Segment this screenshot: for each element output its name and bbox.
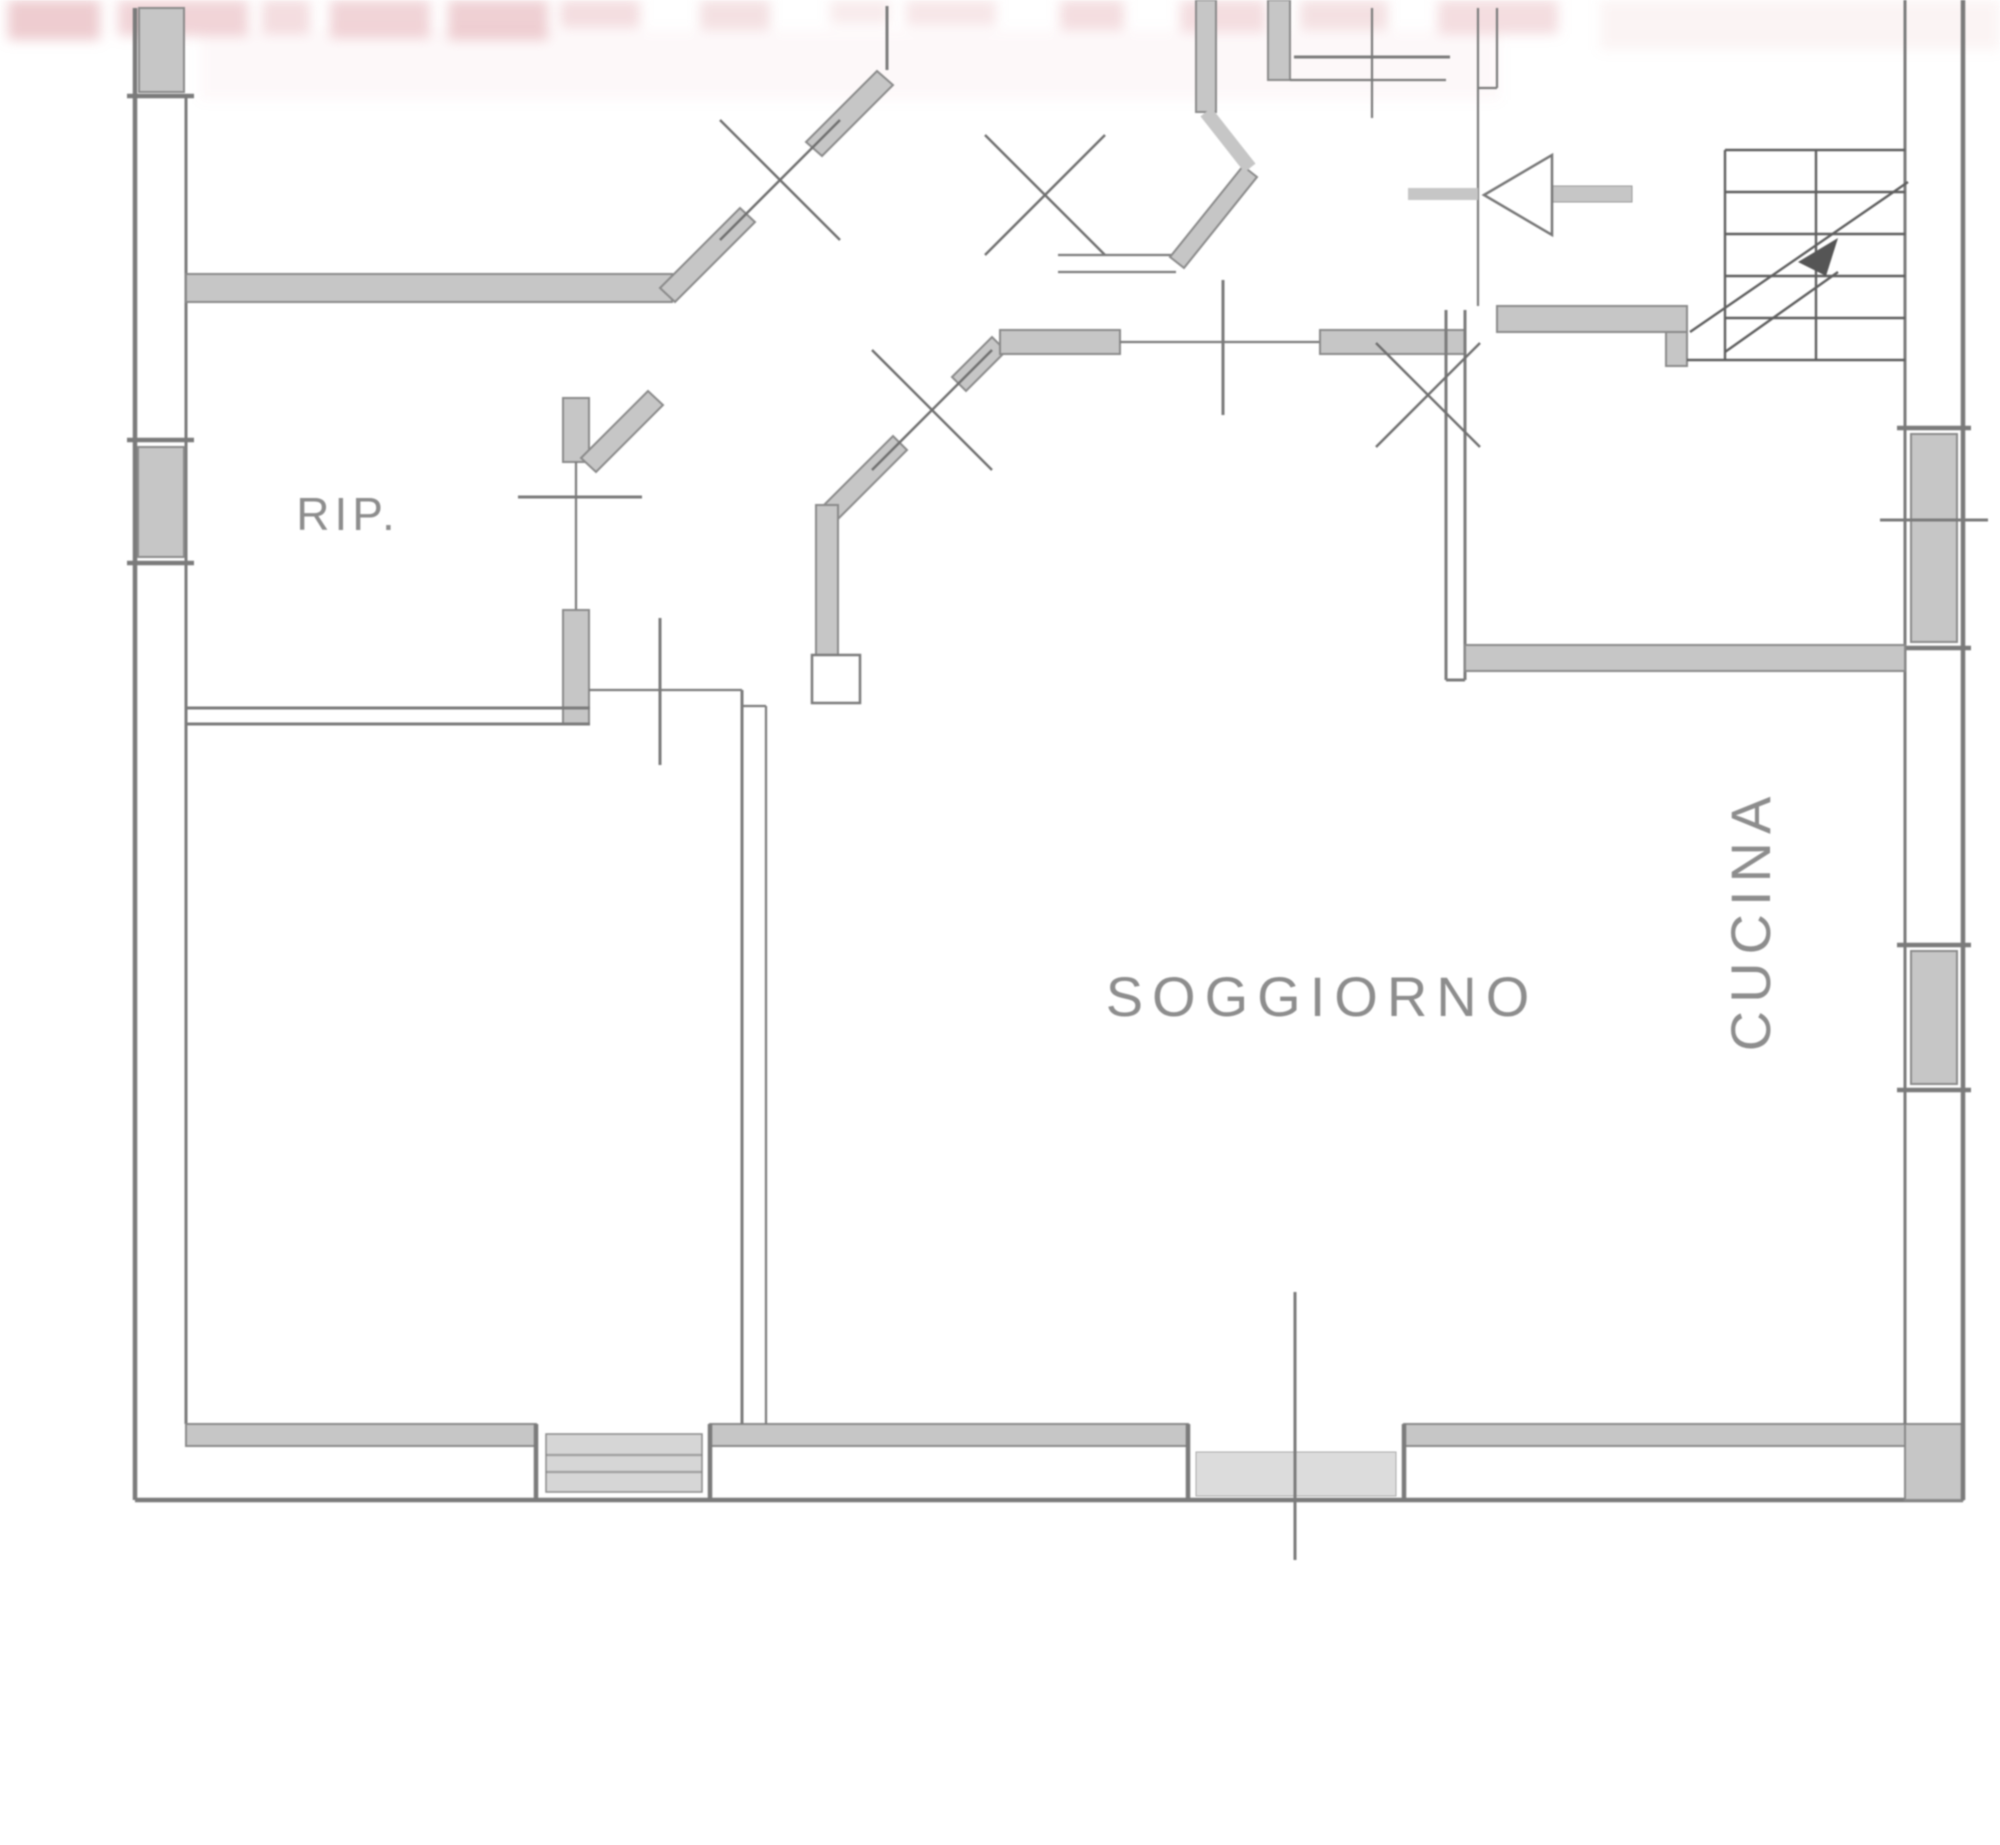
window-icon [138, 447, 184, 557]
door-swing-x-icon [985, 135, 1105, 255]
right-block-walls [1376, 306, 1905, 680]
floor-plan-page: RIP. SOGGIORNO CUCINA [0, 0, 2000, 1845]
watermark [8, 0, 2000, 100]
entrance-opening [1188, 1292, 1404, 1560]
window-icon [536, 1424, 710, 1500]
rip-room-walls [186, 274, 672, 724]
rip-top-wall [186, 274, 672, 302]
left-outer-wall [127, 8, 194, 1500]
room-label-cucina: CUCINA [1719, 789, 1782, 1052]
room-label-soggiorno: SOGGIORNO [1106, 965, 1539, 1028]
door-leaf-triangle-icon [1484, 155, 1552, 235]
soggiorno-door [589, 618, 742, 765]
soggiorno-walls [742, 280, 1465, 1424]
pillar [812, 655, 860, 703]
window-icon [139, 8, 184, 92]
stairs-room-door [1408, 155, 1632, 235]
room-label-rip: RIP. [296, 488, 400, 540]
window-icon [1897, 945, 1971, 1090]
right-outer-wall [1880, 0, 1988, 1500]
window-icon [1880, 428, 1988, 648]
bottom-outer-wall [135, 1292, 1963, 1560]
corridor-walls [581, 0, 1257, 703]
door-swing-x-icon [720, 120, 840, 240]
stairs-icon [1687, 150, 1908, 360]
kitchen-top-wall [1465, 645, 1905, 671]
floor-plan-image: RIP. SOGGIORNO CUCINA [0, 0, 2000, 1845]
corner-block [1905, 1424, 1963, 1500]
door-swing-x-icon [872, 350, 992, 470]
